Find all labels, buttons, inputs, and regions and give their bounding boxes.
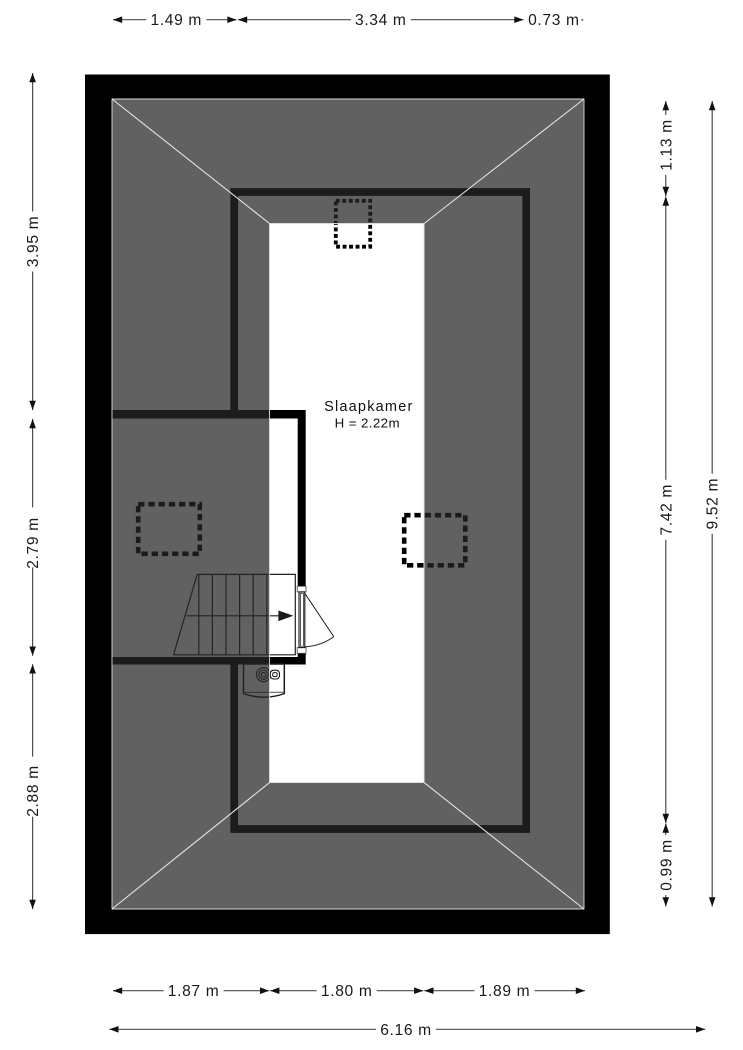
svg-text:7.42 m: 7.42 m (658, 484, 675, 536)
svg-text:H = 2.22m: H = 2.22m (335, 415, 400, 430)
svg-text:0.99 m: 0.99 m (658, 839, 675, 891)
svg-text:1.87 m: 1.87 m (168, 983, 220, 1000)
svg-text:1.13 m: 1.13 m (658, 119, 675, 171)
svg-text:9.52 m: 9.52 m (705, 478, 722, 530)
svg-text:1.89 m: 1.89 m (479, 983, 531, 1000)
svg-text:1.49 m: 1.49 m (151, 12, 203, 29)
svg-text:3.34 m: 3.34 m (355, 12, 407, 29)
svg-text:2.88 m: 2.88 m (25, 765, 42, 817)
svg-text:3.95 m: 3.95 m (25, 216, 42, 268)
svg-text:Slaapkamer: Slaapkamer (324, 399, 413, 415)
svg-text:1.80 m: 1.80 m (321, 983, 373, 1000)
svg-text:2.79 m: 2.79 m (25, 517, 42, 569)
svg-text:0.73 m: 0.73 m (528, 12, 580, 29)
svg-text:6.16 m: 6.16 m (380, 1022, 432, 1039)
